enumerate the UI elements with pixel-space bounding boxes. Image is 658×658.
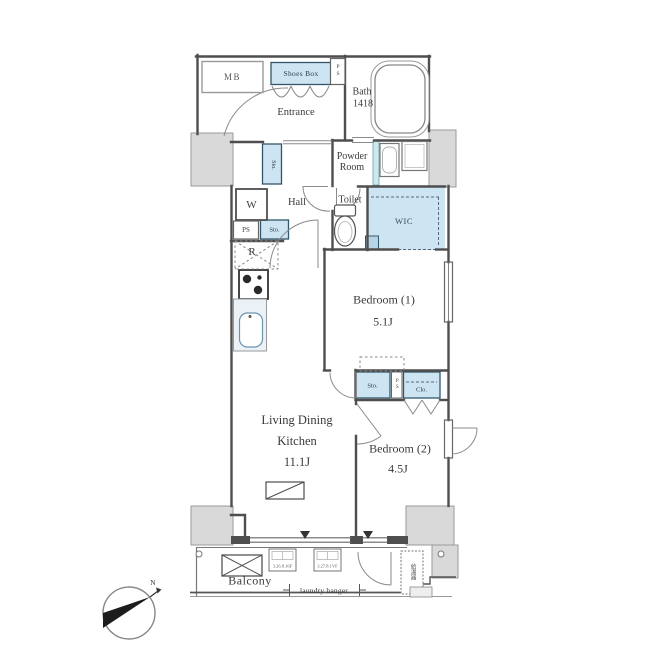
closet-label: Clo. (416, 386, 427, 393)
refrigerator-label: R (248, 246, 255, 258)
bath-label: Bath (353, 86, 372, 97)
balcony-post-right (438, 551, 444, 557)
hall-storage-label: Sto. (269, 226, 279, 233)
powder-room-door-swing (303, 186, 330, 211)
toilet-tank (335, 205, 356, 216)
toilet-label: Toilet (338, 194, 361, 205)
bedroom1-size-label: 5.1J (373, 315, 393, 328)
mid-pipe-shaft-label: PS (394, 379, 400, 391)
balcony-drain-box (410, 587, 432, 597)
hall-label: Hall (288, 197, 306, 209)
ldk-size-label: 11.1J (284, 455, 310, 469)
shoes-box-label: Shoes Box (284, 69, 319, 77)
balcony-post-left (196, 551, 202, 557)
compass-north-label: N (150, 579, 155, 587)
balcony-door-swing (358, 552, 391, 585)
fixtures (202, 59, 429, 500)
kitchen-sink (240, 313, 263, 347)
floorplan-canvas: MB Shoes Box PS Bath 1418 Entrance Sto. … (0, 0, 658, 658)
bedroom1-dashed-area (360, 357, 404, 371)
bedroom2-label: Bedroom (2) (369, 442, 431, 455)
ldk-label-line2: Kitchen (277, 434, 317, 448)
closet-cabinet (404, 372, 441, 398)
compass (103, 587, 162, 639)
bathtub (375, 65, 425, 133)
mid-storage-label: Sto. (367, 382, 377, 389)
bedroom1-label: Bedroom (1) (353, 293, 415, 306)
hatch-note-right: 3.27.8.1VF (317, 563, 337, 568)
wic-label: WIC (395, 217, 413, 227)
closet-bifold-doors (404, 400, 440, 414)
entry-storage-label: Sto. (269, 160, 276, 170)
hatch-note-left: 3.26.8.16F (273, 563, 292, 568)
meter-box-label: MB (224, 72, 241, 82)
washer-label: W (246, 199, 256, 211)
bath-size-label: 1418 (353, 98, 373, 109)
laundry-hanger-label: laundry hanger (300, 586, 348, 594)
bedroom2-window-swing (452, 428, 477, 454)
bedroom1-door-swing (330, 373, 356, 399)
floorplan-drawing (0, 0, 658, 658)
windows (250, 262, 453, 542)
powder-room-label: Powder Room (327, 151, 377, 173)
balcony-label: Balcony (228, 574, 272, 587)
pipe-shaft-top-label: PS (335, 64, 341, 78)
water-heater-label: 給湯器 (409, 564, 415, 581)
hall-pipe-shaft-label: PS (242, 227, 250, 235)
faucet (249, 315, 252, 318)
stove (239, 270, 268, 299)
compass-needle (103, 597, 150, 628)
ldk-label-line1: Living Dining (261, 413, 332, 427)
bedroom2-size-label: 4.5J (388, 462, 408, 475)
entrance-label: Entrance (277, 107, 314, 119)
